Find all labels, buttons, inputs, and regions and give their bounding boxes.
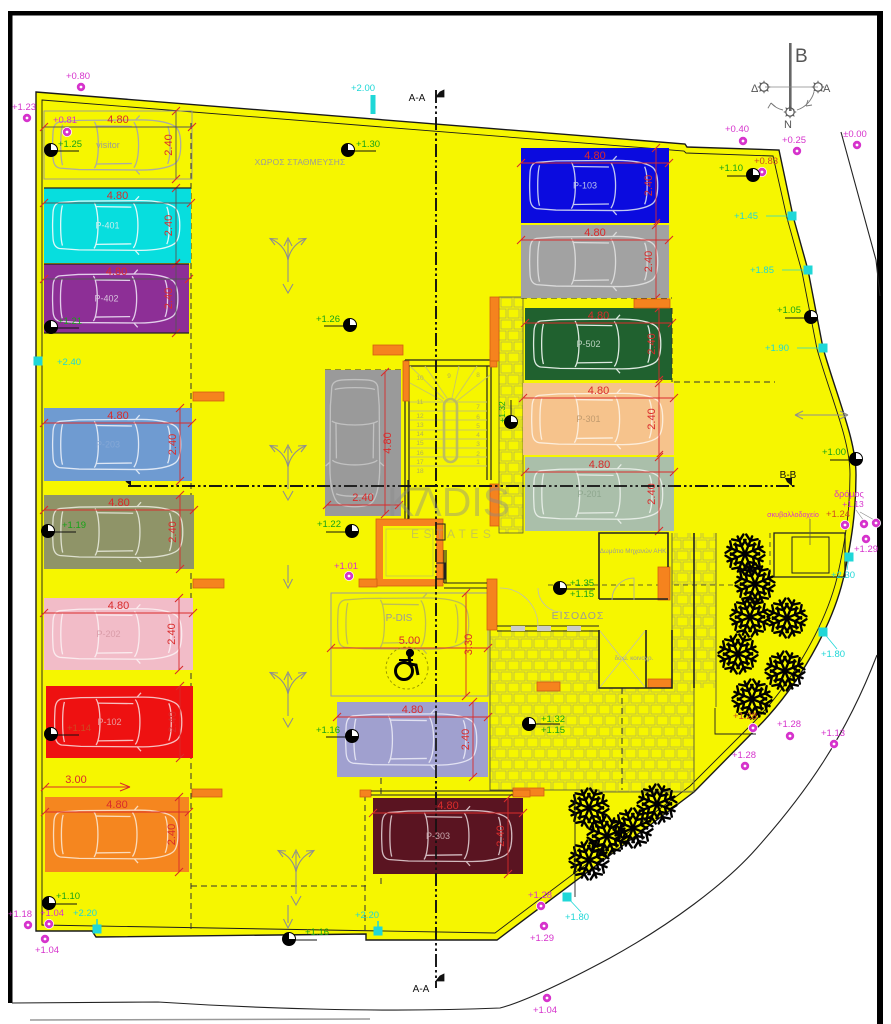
svg-text:4.80: 4.80	[382, 432, 394, 453]
svg-text:+2.20: +2.20	[73, 908, 97, 919]
svg-text:+1.28: +1.28	[733, 711, 757, 722]
svg-text:2.40: 2.40	[646, 333, 658, 354]
svg-text:2.40: 2.40	[163, 134, 175, 155]
svg-text:P-502: P-502	[576, 339, 600, 349]
svg-text:4.80: 4.80	[107, 410, 128, 422]
svg-text:P-402: P-402	[94, 294, 118, 304]
svg-text:4.80: 4.80	[402, 704, 423, 716]
svg-text:+0.81: +0.81	[53, 115, 77, 126]
svg-text:+1.13: +1.13	[821, 728, 845, 739]
svg-text:+1.80: +1.80	[565, 912, 589, 923]
svg-text:11: 11	[417, 399, 424, 406]
svg-text:4.80: 4.80	[588, 385, 609, 397]
svg-text:+1.28: +1.28	[732, 750, 756, 761]
svg-text:A-A: A-A	[413, 984, 430, 995]
svg-text:2.40: 2.40	[495, 825, 507, 846]
svg-text:+1.15: +1.15	[541, 725, 565, 736]
svg-text:17: 17	[416, 459, 424, 466]
svg-text:18: 18	[416, 468, 424, 475]
svg-text:+1.85: +1.85	[750, 265, 774, 276]
svg-text:+1.21: +1.21	[58, 316, 82, 327]
svg-text:4.80: 4.80	[107, 190, 128, 202]
svg-text:P-103: P-103	[573, 181, 597, 191]
svg-text:P-303: P-303	[426, 831, 450, 841]
svg-text:+1.24: +1.24	[826, 509, 850, 520]
svg-text:σκυβαλλοδοχείο: σκυβαλλοδοχείο	[767, 510, 819, 519]
svg-text:4.80: 4.80	[589, 459, 610, 471]
svg-text:13: 13	[416, 422, 424, 429]
svg-text:B: B	[795, 46, 808, 67]
svg-text:+1.29: +1.29	[530, 933, 554, 944]
svg-text:2.40: 2.40	[163, 215, 175, 236]
svg-text:P-203: P-203	[96, 440, 120, 450]
svg-text:+1.32: +1.32	[541, 714, 565, 725]
svg-text:2.40: 2.40	[167, 521, 179, 542]
svg-text:P-102: P-102	[97, 717, 121, 727]
svg-text:+1.90: +1.90	[765, 343, 789, 354]
svg-text:2.40: 2.40	[167, 434, 179, 455]
svg-text:±0.00: ±0.00	[843, 129, 867, 140]
svg-text:+1.30: +1.30	[356, 139, 380, 150]
svg-text:5: 5	[476, 423, 480, 430]
svg-text:+1.04: +1.04	[40, 908, 64, 919]
svg-text:+1.29: +1.29	[854, 544, 878, 555]
svg-text:12: 12	[416, 413, 424, 420]
svg-text:2.40: 2.40	[167, 711, 179, 732]
svg-text:+1.16: +1.16	[305, 927, 329, 938]
svg-text:+2.30: +2.30	[831, 570, 855, 581]
svg-text:4: 4	[476, 432, 480, 439]
svg-text:+1.16: +1.16	[316, 725, 340, 736]
svg-text:1: 1	[476, 459, 480, 466]
svg-text:+1.01: +1.01	[334, 561, 358, 572]
svg-text:+1.26: +1.26	[316, 314, 340, 325]
svg-text:+1.80: +1.80	[821, 649, 845, 660]
svg-text:2.40: 2.40	[352, 492, 373, 504]
svg-text:16: 16	[416, 450, 424, 457]
svg-text:P-201: P-201	[577, 489, 601, 499]
svg-text:3.30: 3.30	[463, 634, 475, 655]
svg-text:+0.83: +0.83	[754, 156, 778, 167]
svg-text:4.80: 4.80	[107, 114, 128, 126]
svg-text:14: 14	[416, 431, 424, 438]
svg-text:+2.00: +2.00	[351, 83, 375, 94]
svg-text:+1.10: +1.10	[719, 163, 743, 174]
svg-text:P-DIS: P-DIS	[386, 613, 413, 624]
svg-text:+1.04: +1.04	[35, 945, 59, 956]
svg-text:A-A: A-A	[409, 93, 426, 104]
svg-text:4.80: 4.80	[108, 497, 129, 509]
svg-text:+1.04: +1.04	[533, 1005, 557, 1016]
svg-text:P-202: P-202	[96, 629, 120, 639]
svg-text:3.00: 3.00	[65, 774, 86, 786]
svg-text:2: 2	[476, 451, 480, 458]
svg-text:8: 8	[476, 372, 480, 379]
svg-text:+0.25: +0.25	[782, 135, 806, 146]
svg-text:ΕΙΣΟΔΟΣ: ΕΙΣΟΔΟΣ	[552, 610, 605, 622]
svg-text:N: N	[784, 119, 792, 131]
svg-text:2.40: 2.40	[460, 729, 472, 750]
svg-text:7: 7	[476, 404, 480, 411]
svg-text:P-301: P-301	[576, 414, 600, 424]
svg-text:+1.28: +1.28	[528, 890, 552, 901]
svg-text:4.80: 4.80	[588, 310, 609, 322]
svg-text:4.80: 4.80	[106, 266, 127, 278]
svg-text:2.40: 2.40	[166, 824, 178, 845]
svg-text:2.40: 2.40	[646, 408, 658, 429]
svg-text:P-401: P-401	[95, 221, 119, 231]
svg-text:6: 6	[476, 414, 480, 421]
svg-text:Δωμάτιο Μηχανών ΑΗΚ: Δωμάτιο Μηχανών ΑΗΚ	[600, 547, 667, 555]
svg-text:+0.40: +0.40	[725, 124, 749, 135]
svg-text:+1.15: +1.15	[570, 589, 594, 600]
svg-text:4.80: 4.80	[108, 600, 129, 612]
svg-text:+2.20: +2.20	[355, 910, 379, 921]
svg-text:KΛDIS: KΛDIS	[387, 479, 510, 525]
svg-text:10: 10	[416, 375, 424, 382]
svg-text:+1.22: +1.22	[317, 519, 341, 530]
svg-text:+1.18: +1.18	[8, 909, 32, 920]
svg-text:+1.13: +1.13	[842, 499, 864, 509]
svg-text:2.40: 2.40	[163, 288, 175, 309]
svg-text:+1.32: +1.32	[497, 401, 507, 423]
svg-text:+1.05: +1.05	[777, 305, 801, 316]
svg-text:9: 9	[447, 373, 451, 380]
svg-text:Δ: Δ	[751, 83, 759, 95]
svg-text:3: 3	[476, 441, 480, 448]
svg-text:4.80: 4.80	[106, 799, 127, 811]
svg-text:+1.25: +1.25	[58, 139, 82, 150]
svg-text:+1.35: +1.35	[570, 578, 594, 589]
svg-text:+1.10: +1.10	[56, 891, 80, 902]
svg-text:+2.40: +2.40	[57, 357, 81, 368]
svg-text:+1.00: +1.00	[822, 447, 846, 458]
svg-text:15: 15	[416, 440, 424, 447]
svg-text:4.80: 4.80	[437, 800, 458, 812]
svg-text:+1.23: +1.23	[12, 102, 36, 113]
svg-text:+1.45: +1.45	[734, 211, 758, 222]
svg-text:2.40: 2.40	[643, 175, 655, 196]
svg-text:A: A	[823, 83, 831, 95]
svg-text:ΧΩΡΟΣ ΣΤΑΘΜΕΥΣΗΣ: ΧΩΡΟΣ ΣΤΑΘΜΕΥΣΗΣ	[255, 157, 346, 167]
svg-text:2.40: 2.40	[643, 251, 655, 272]
svg-text:+1.14: +1.14	[67, 723, 91, 734]
svg-text:4.80: 4.80	[584, 227, 605, 239]
svg-text:+1.19: +1.19	[62, 520, 86, 531]
svg-text:5.00: 5.00	[399, 635, 420, 647]
svg-text:δρόμος: δρόμος	[834, 489, 864, 499]
svg-text:2.40: 2.40	[166, 623, 178, 644]
svg-text:+1.28: +1.28	[777, 719, 801, 730]
svg-text:visitor: visitor	[96, 140, 120, 150]
svg-text:+0.80: +0.80	[66, 71, 90, 82]
svg-text:4.80: 4.80	[584, 150, 605, 162]
svg-text:ESTATES: ESTATES	[411, 527, 495, 541]
